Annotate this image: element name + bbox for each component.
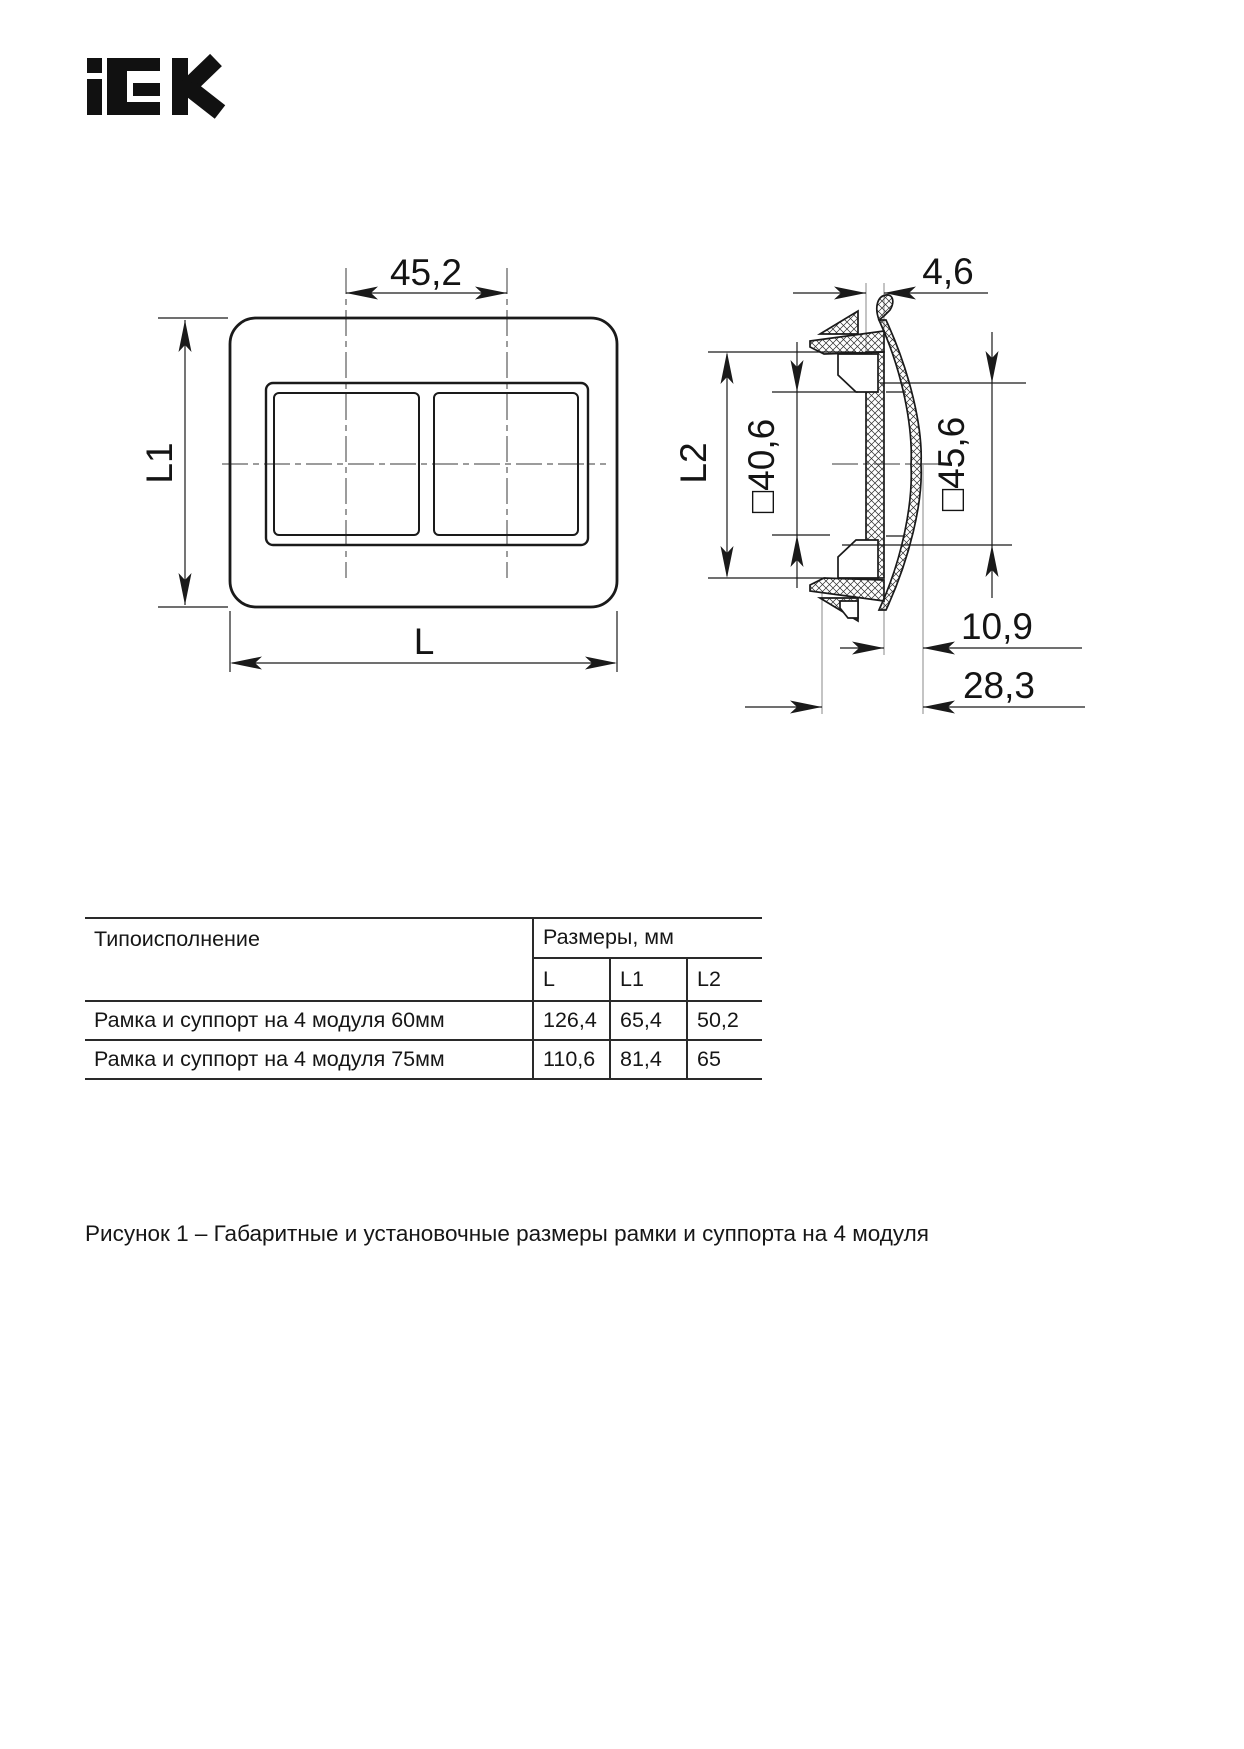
dimension-L1: L1 [139,318,228,607]
frame-face-section [879,320,921,610]
dim-label-28-3: 28,3 [963,665,1035,706]
row-name: Рамка и суппорт на 4 модуля 75мм [85,1040,533,1079]
top-claw [838,354,878,392]
dimension-28-3: 28,3 [745,665,1085,714]
dim-label-10-9: 10,9 [961,606,1033,647]
front-view: 45,2 L1 L [139,252,617,672]
row-L1: 65,4 [610,1001,687,1040]
dimension-10-9: 10,9 [840,606,1082,655]
document-page: { "logo": { "brand": "iEK" }, "figure": … [0,0,1244,1749]
dim-label-L2: L2 [673,442,714,483]
dim-label-L1: L1 [139,442,180,483]
table-row: Рамка и суппорт на 4 модуля 60мм 126,4 6… [85,1001,762,1040]
row-L: 110,6 [533,1040,610,1079]
bottom-claw [838,540,878,578]
dim-label-4-6: 4,6 [922,251,973,292]
dim-label-L: L [414,621,435,662]
section-profile [810,295,921,621]
figure-caption: Рисунок 1 – Габаритные и установочные ра… [85,1221,1085,1247]
top-gusset [820,311,858,334]
row-L2: 50,2 [687,1001,762,1040]
header-L2: L2 [687,958,762,1001]
side-view: 4,6 L2 □40,6 □45,6 [673,251,1085,714]
table-row: Рамка и суппорт на 4 модуля 75мм 110,6 8… [85,1040,762,1079]
dim-label-45-2: 45,2 [390,252,462,293]
row-L: 126,4 [533,1001,610,1040]
spec-table: Типоисполнение Размеры, мм L L1 L2 Рамка… [85,917,762,1080]
bottom-foot [840,601,858,618]
frame-outline [230,318,617,607]
dimension-4-6: 4,6 [793,251,988,300]
dim-label-40-6: □40,6 [741,419,782,513]
header-L1: L1 [610,958,687,1001]
dimension-40-6: □40,6 [741,342,858,588]
header-dimensions-group: Размеры, мм [533,918,762,958]
row-L1: 81,4 [610,1040,687,1079]
dimension-45-2: 45,2 [346,252,507,300]
top-hook [877,295,893,320]
dimension-drawing: 45,2 L1 L [0,0,1244,760]
row-name: Рамка и суппорт на 4 модуля 60мм [85,1001,533,1040]
dimension-L: L [230,611,617,672]
table-header-row-1: Типоисполнение Размеры, мм [85,918,762,958]
header-type: Типоисполнение [85,918,533,1001]
dim-label-45-6: □45,6 [931,417,972,511]
row-L2: 65 [687,1040,762,1079]
header-L: L [533,958,610,1001]
